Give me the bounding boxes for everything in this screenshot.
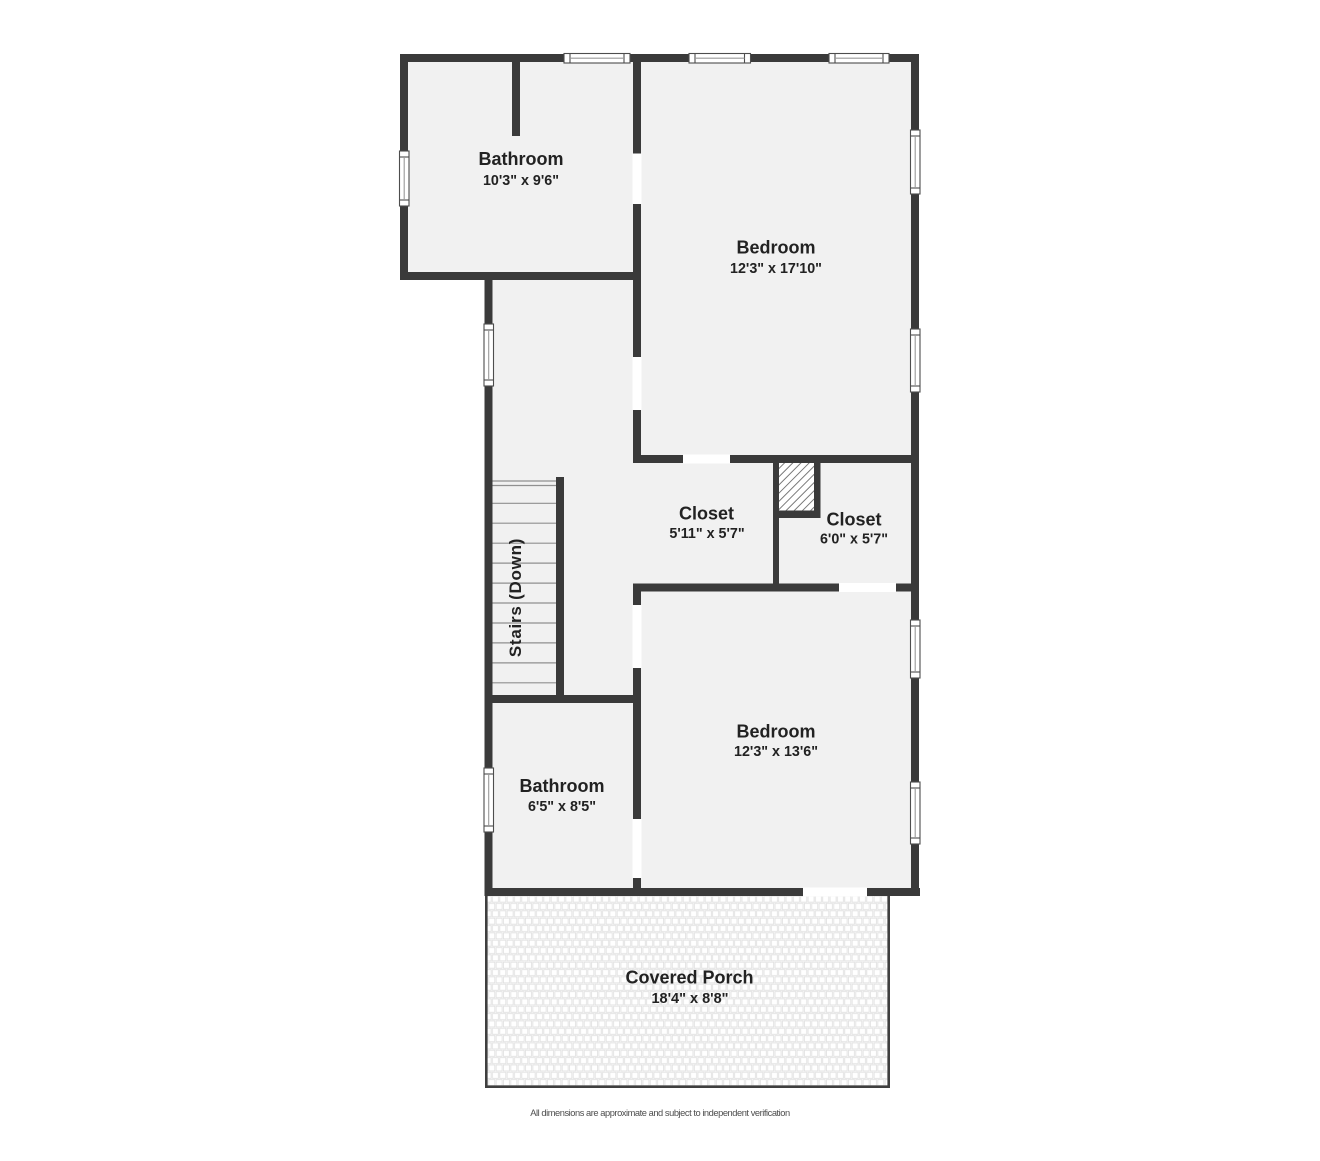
- svg-text:Bedroom: Bedroom: [736, 238, 815, 258]
- svg-text:12'3" x 17'10": 12'3" x 17'10": [730, 261, 822, 277]
- svg-text:5'11" x 5'7": 5'11" x 5'7": [669, 526, 744, 542]
- svg-text:12'3" x 13'6": 12'3" x 13'6": [734, 744, 818, 760]
- svg-text:Bedroom: Bedroom: [736, 722, 815, 742]
- svg-text:All dimensions are approximate: All dimensions are approximate and subje…: [530, 1108, 790, 1118]
- svg-text:Bathroom: Bathroom: [520, 776, 605, 796]
- svg-text:18'4" x 8'8": 18'4" x 8'8": [651, 991, 728, 1007]
- svg-text:Stairs (Down): Stairs (Down): [506, 538, 525, 657]
- svg-text:10'3" x 9'6": 10'3" x 9'6": [483, 173, 559, 189]
- svg-text:6'5" x 8'5": 6'5" x 8'5": [528, 799, 596, 815]
- svg-text:Covered Porch: Covered Porch: [625, 968, 753, 988]
- svg-text:6'0" x 5'7": 6'0" x 5'7": [820, 532, 888, 548]
- svg-text:Closet: Closet: [826, 510, 881, 530]
- svg-text:Bathroom: Bathroom: [479, 149, 564, 169]
- svg-text:Closet: Closet: [679, 504, 734, 524]
